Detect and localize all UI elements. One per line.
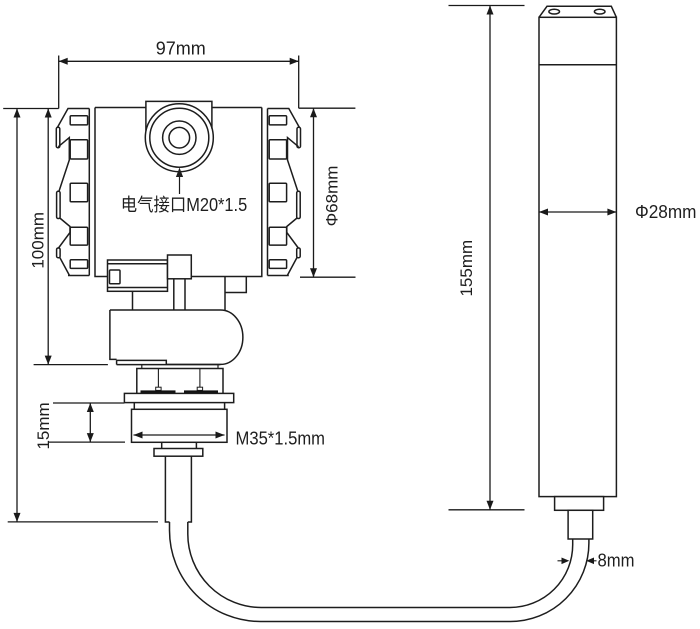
svg-text:Φ28mm: Φ28mm [635, 202, 697, 222]
svg-text:Φ68mm: Φ68mm [322, 166, 341, 227]
svg-text:155mm: 155mm [457, 240, 476, 297]
svg-text:8mm: 8mm [598, 551, 635, 571]
svg-text:100mm: 100mm [28, 212, 47, 269]
svg-text:M35*1.5mm: M35*1.5mm [236, 428, 326, 448]
svg-text:97mm: 97mm [156, 38, 206, 58]
svg-text:电气接口M20*1.5: 电气接口M20*1.5 [121, 195, 248, 215]
svg-text:15mm: 15mm [34, 402, 53, 449]
